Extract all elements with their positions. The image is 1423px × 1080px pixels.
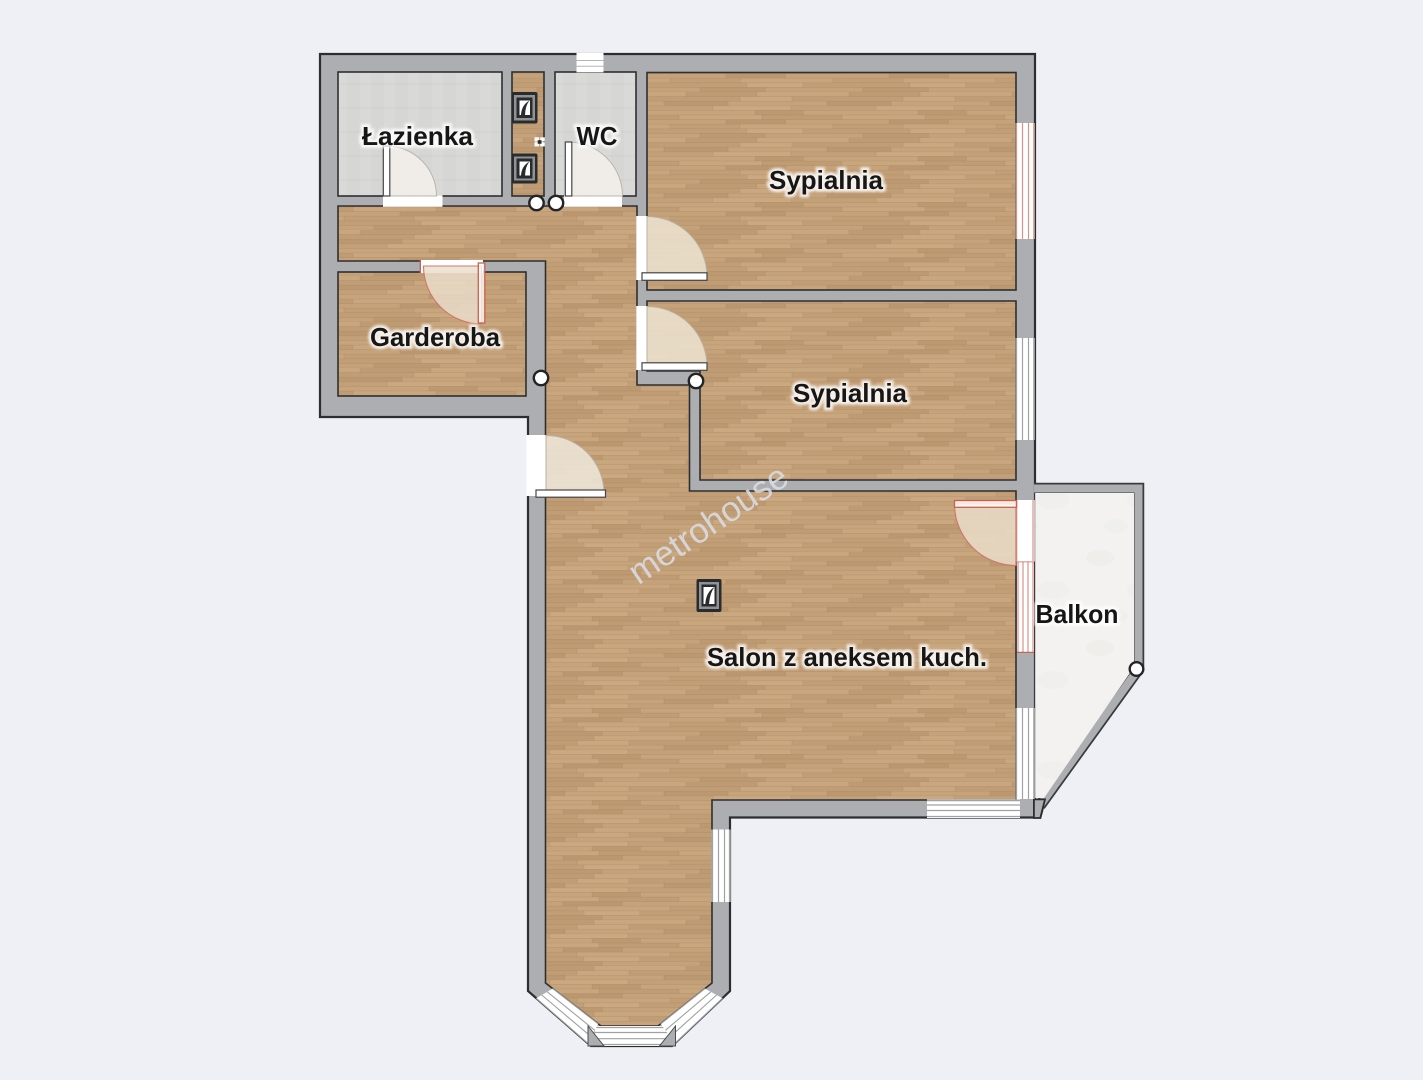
svg-text:Łazienka: Łazienka	[362, 121, 474, 151]
svg-text:Garderoba: Garderoba	[370, 322, 501, 352]
svg-text:Balkon: Balkon	[1036, 599, 1119, 629]
svg-text:Salon z aneksem kuch.: Salon z aneksem kuch.	[707, 642, 987, 672]
svg-text:WC: WC	[577, 121, 618, 151]
svg-text:Sypialnia: Sypialnia	[793, 378, 908, 408]
svg-text:Sypialnia: Sypialnia	[769, 165, 884, 195]
